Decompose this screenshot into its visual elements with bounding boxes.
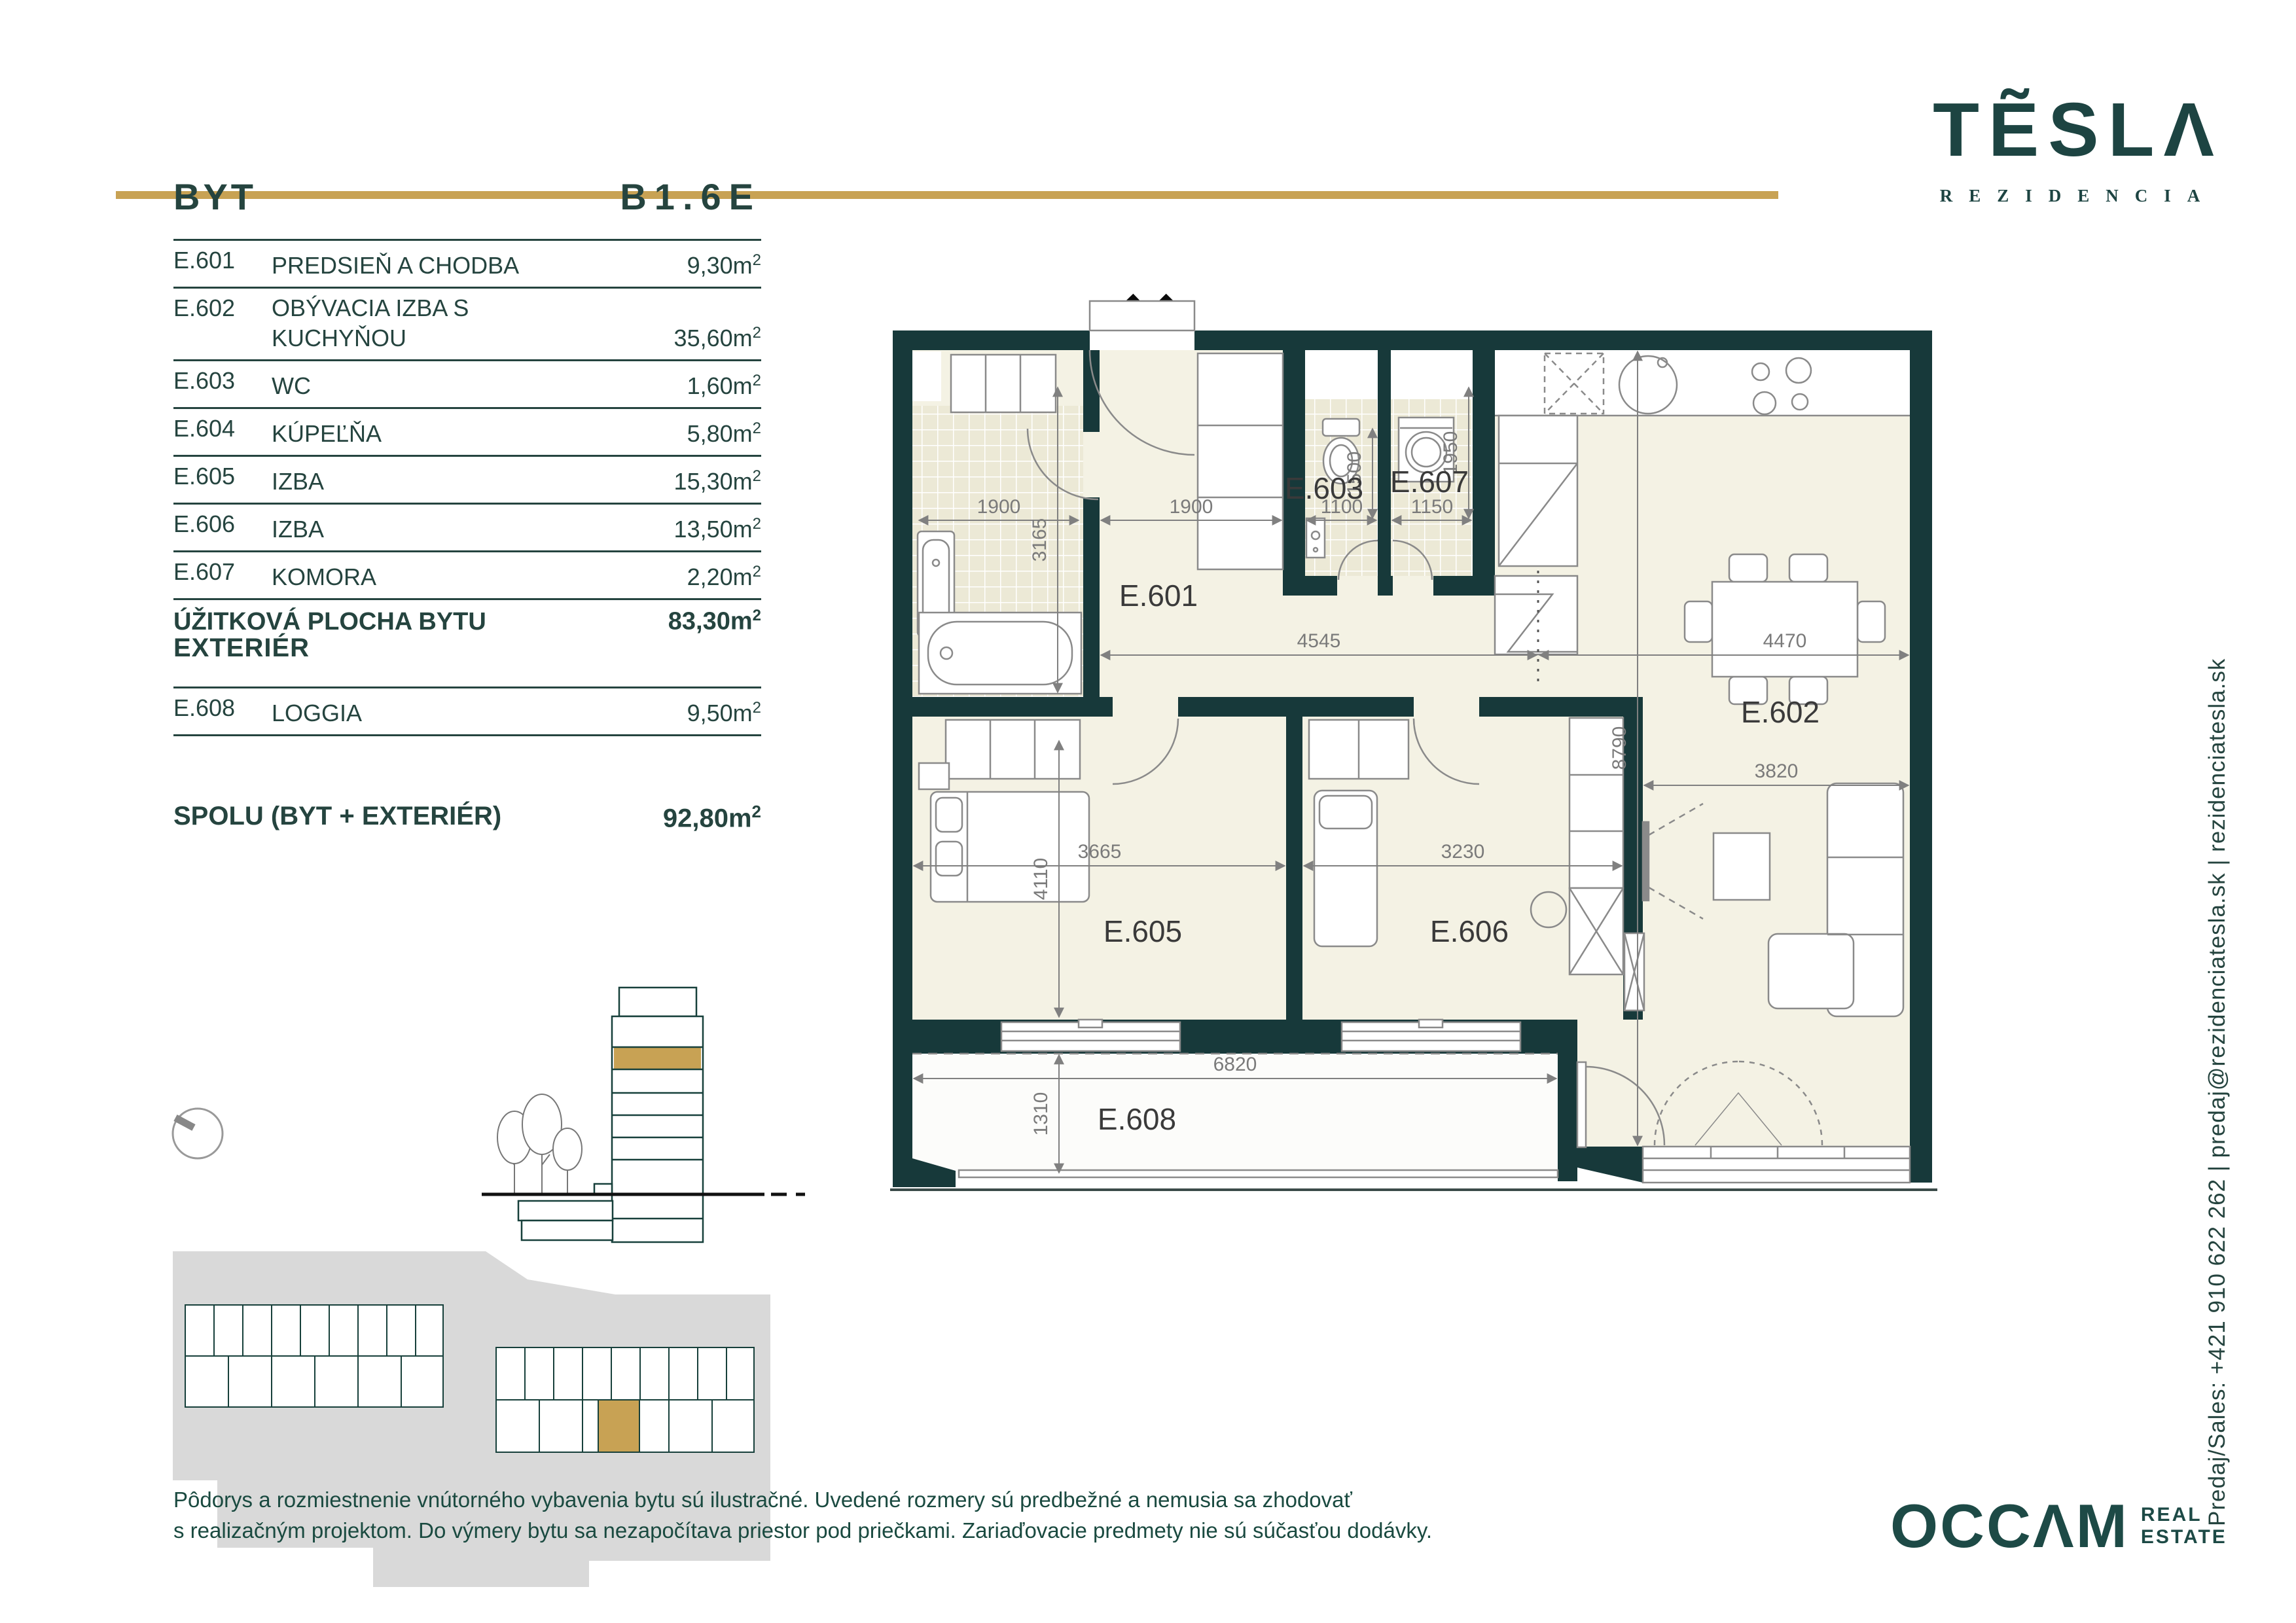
orientation-dial-icon (173, 1109, 223, 1158)
svg-text:1900: 1900 (977, 496, 1021, 518)
single-bed (1314, 791, 1377, 946)
room-label-e602: E.602 (1741, 695, 1820, 729)
window-bedroom2 (1342, 1020, 1520, 1051)
exterior-heading: EXTERIÉR (173, 633, 761, 663)
building-a-footprint (185, 1305, 443, 1407)
tall-cabinet (1499, 416, 1577, 566)
wc-basin (1306, 518, 1325, 558)
rooms-table: E.601 PREDSIEŇ A CHODBA 9,30m2 E.602 OBÝ… (173, 239, 761, 644)
table-row: E.604 KÚPEĽŇA 5,80m2 (173, 407, 761, 455)
exterior-section: EXTERIÉR E.608 LOGGIA 9,50m2 SPOLU (BYT … (173, 633, 761, 833)
building-b-footprint (496, 1347, 754, 1452)
table-row: E.608 LOGGIA 9,50m2 (173, 687, 761, 736)
double-bed (931, 792, 1089, 902)
highlighted-floor (614, 1047, 701, 1069)
table-row: E.607 KOMORA 2,20m2 (173, 550, 761, 598)
bathtub (919, 613, 1081, 694)
shaft (1495, 576, 1577, 654)
tesla-logo: TẼSLΛ REZIDENCIA (1924, 92, 2232, 206)
table-row: E.602 OBÝVACIA IZBA S KUCHYŇOU 35,60m2 (173, 287, 761, 359)
apartment-code: B1.6E (620, 175, 761, 218)
svg-text:1150: 1150 (1411, 496, 1454, 518)
svg-text:3230: 3230 (1441, 841, 1485, 863)
highlighted-unit (598, 1400, 639, 1452)
floorplan-sheet: TẼSLΛ REZIDENCIA BYT B1.6E E.601 PREDSIE… (0, 0, 2296, 1623)
tesla-logo-subtitle: REZIDENCIA (1924, 186, 2232, 206)
svg-text:4110: 4110 (1030, 858, 1052, 901)
trees-icon (497, 1094, 582, 1194)
svg-text:3165: 3165 (1029, 518, 1050, 562)
svg-text:1310: 1310 (1030, 1092, 1052, 1136)
occam-logo: OCCΛM REAL ESTATE (1890, 1499, 2227, 1554)
svg-text:4470: 4470 (1763, 630, 1807, 652)
loggia-railing (959, 1170, 1558, 1177)
svg-text:6820: 6820 (1213, 1054, 1257, 1075)
table-row: E.605 IZBA 15,30m2 (173, 455, 761, 503)
bathroom-closet (951, 355, 1056, 412)
table-row: E.603 WC 1,60m2 (173, 359, 761, 407)
table-row: E.606 IZBA 13,50m2 (173, 503, 761, 550)
room-label-e603: E.603 (1285, 471, 1363, 505)
svg-text:3665: 3665 (1078, 841, 1122, 863)
dresser (1624, 933, 1644, 1010)
room-label-e606: E.606 (1430, 914, 1509, 948)
room-label-e605: E.605 (1103, 914, 1182, 948)
floor-plan: 1900 1900 1100 1150 3165 1500 1950 4545 … (890, 288, 1937, 1204)
bedroom2-closet (1309, 720, 1408, 779)
apartment-header: BYT B1.6E (173, 175, 761, 218)
wall-niche (912, 351, 941, 401)
nightstand (919, 763, 949, 789)
apartment-label: BYT (173, 175, 257, 218)
tesla-logo-text: TẼSLΛ (1924, 92, 2232, 168)
room-label-e608: E.608 (1098, 1102, 1176, 1136)
room-label-e601: E.601 (1119, 579, 1198, 613)
svg-text:1900: 1900 (1170, 496, 1213, 518)
disclaimer-line2: s realizačným projektom. Do výmery bytu … (173, 1515, 1432, 1546)
occam-logo-text: OCCΛM (1890, 1499, 2129, 1554)
hall-wardrobe (1198, 353, 1283, 569)
apartment-info-panel: BYT B1.6E E.601 PREDSIEŇ A CHODBA 9,30m2… (173, 175, 761, 644)
occam-sub-estate: ESTATE (2141, 1526, 2227, 1548)
svg-text:3820: 3820 (1755, 760, 1799, 782)
exterior-table: E.608 LOGGIA 9,50m2 (173, 687, 761, 736)
entrance-door-leaf (1090, 301, 1194, 330)
svg-text:8790: 8790 (1609, 726, 1630, 770)
bedroom1-closet (946, 720, 1080, 779)
disclaimer-line1: Pôdorys a rozmiestnenie vnútorného vybav… (173, 1484, 1432, 1515)
table-row: E.601 PREDSIEŇ A CHODBA 9,30m2 (173, 239, 761, 287)
contact-info-vertical: Predaj/Sales: +421 910 622 262 | predaj@… (2204, 551, 2231, 1526)
occam-sub-real: REAL (2141, 1504, 2227, 1526)
coffee-table (1713, 833, 1770, 900)
grand-total-row: SPOLU (BYT + EXTERIÉR) 92,80m2 (173, 802, 761, 833)
room-label-e607: E.607 (1390, 465, 1469, 499)
svg-text:4545: 4545 (1297, 630, 1341, 652)
window-bedroom1 (1001, 1020, 1180, 1051)
disclaimer: Pôdorys a rozmiestnenie vnútorného vybav… (173, 1484, 1432, 1546)
french-window (1643, 1147, 1910, 1183)
